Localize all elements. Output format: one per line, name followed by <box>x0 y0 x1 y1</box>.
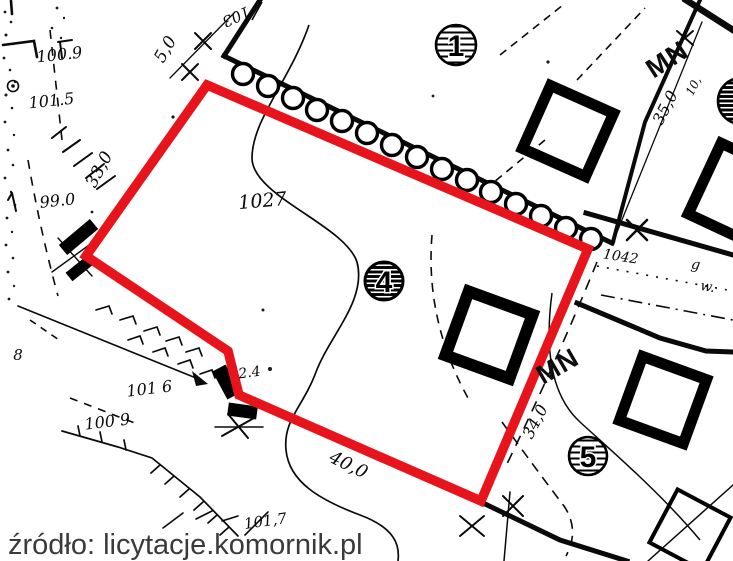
fence-circle <box>382 135 403 156</box>
dimension-5-0: 5,0 <box>150 33 181 67</box>
dimension-10: 10, <box>683 74 704 97</box>
fence-circle <box>283 88 304 109</box>
scarp-line <box>62 426 238 536</box>
dimension-103: 103 <box>219 2 253 30</box>
elevation-101-5: 101.5 <box>28 89 76 113</box>
building-outline <box>619 356 706 443</box>
fence-circle <box>233 64 254 85</box>
terrain-marks <box>3 1 238 536</box>
parcel-boundary-red <box>86 85 588 501</box>
roads <box>224 0 733 561</box>
survey-marks <box>163 12 733 561</box>
fence-circle <box>258 76 279 97</box>
node-circle-partial <box>718 78 733 124</box>
zone-label-top: MN <box>640 35 693 84</box>
elevation-100-9-bottom: 100 9 <box>83 409 131 433</box>
cadastral-map-canvas: 1 4 5 1027 1042 MN MN 5,0 103 33,0 35,0 … <box>0 0 733 561</box>
parcel-number-label: 1027 <box>237 188 288 214</box>
zone-label-bottom: MN <box>531 342 584 390</box>
fence-circle <box>357 123 378 144</box>
fence-circle <box>432 159 453 180</box>
building-outline <box>445 291 532 378</box>
digit-8-label: 8 <box>13 346 23 364</box>
fence-circle <box>307 100 328 121</box>
utility-label-w: w. <box>699 278 716 296</box>
buildings <box>63 85 733 561</box>
fence-circle <box>457 170 478 191</box>
terrace-step-symbols <box>96 306 215 378</box>
node-number-5: 5 <box>580 441 597 474</box>
adjacent-parcel-label: 1042 <box>602 246 640 267</box>
source-caption: źródło: licytacje.komornik.pl <box>8 529 363 561</box>
fence-circle <box>407 147 428 168</box>
road-edge <box>577 303 733 352</box>
elevation-100-9-top: 100.9 <box>36 43 84 67</box>
node-number-4: 4 <box>376 266 393 299</box>
fence-circle <box>332 111 353 132</box>
building-outline <box>522 85 613 176</box>
building-outline <box>688 143 733 247</box>
dimension-2-4: 2.4 <box>236 364 261 383</box>
building-outline-thin <box>649 489 730 561</box>
elevation-99-0: 99.0 <box>39 189 76 212</box>
dimension-35-0: 35,0 <box>649 87 682 127</box>
node-number-1: 1 <box>448 30 465 63</box>
elevation-101-6: 101 6 <box>125 376 173 400</box>
building-filled <box>228 409 257 413</box>
dimension-33-0: 33,0 <box>82 148 118 191</box>
utility-label-g: g <box>690 256 701 273</box>
cadastral-map-screenshot: 1 4 5 1027 1042 MN MN 5,0 103 33,0 35,0 … <box>0 0 733 561</box>
utility-line-w <box>601 295 733 320</box>
